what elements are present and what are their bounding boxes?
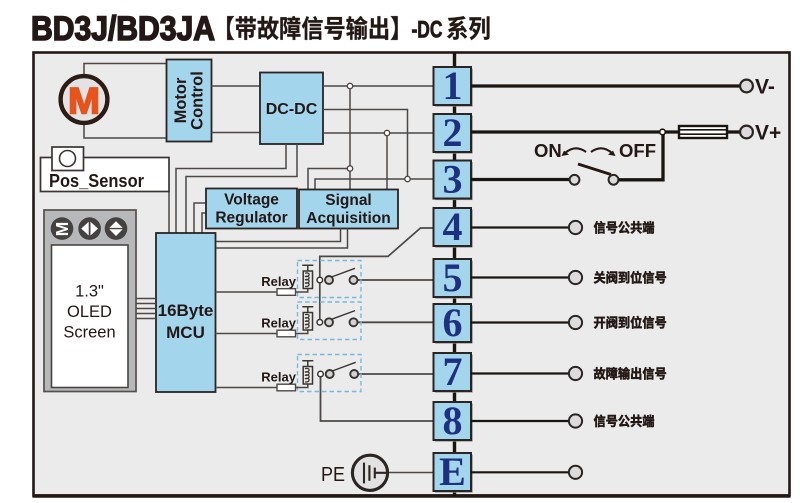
svg-text:5: 5 <box>443 255 463 300</box>
svg-text:BD3J/BD3JA: BD3J/BD3JA <box>31 10 215 48</box>
svg-text:Acquisition: Acquisition <box>306 210 390 227</box>
svg-text:ON: ON <box>534 140 562 161</box>
svg-text:E: E <box>439 449 466 494</box>
svg-text:-DC: -DC <box>412 16 443 43</box>
svg-text:1.3": 1.3" <box>75 283 104 301</box>
svg-text:V-: V- <box>755 76 775 99</box>
svg-text:16Byte: 16Byte <box>158 301 214 320</box>
svg-text:Regulator: Regulator <box>215 210 287 227</box>
svg-text:4: 4 <box>443 204 463 249</box>
svg-text:Signal: Signal <box>325 192 372 209</box>
svg-text:2: 2 <box>443 110 463 155</box>
svg-text:Voltage: Voltage <box>224 192 279 209</box>
svg-text:OFF: OFF <box>619 140 656 161</box>
svg-text:M: M <box>52 222 72 237</box>
svg-text:MCU: MCU <box>166 323 205 342</box>
svg-text:OLED: OLED <box>67 303 112 321</box>
svg-text:Motor: Motor <box>172 77 190 123</box>
svg-text:Screen: Screen <box>63 324 115 342</box>
svg-text:8: 8 <box>443 398 463 443</box>
svg-text:Control: Control <box>189 71 207 130</box>
svg-text:Pos_Sensor: Pos_Sensor <box>49 171 144 191</box>
svg-text:3: 3 <box>443 157 463 202</box>
svg-text:Relay: Relay <box>261 274 296 289</box>
svg-text:DC-DC: DC-DC <box>266 101 318 118</box>
svg-text:1: 1 <box>443 63 463 108</box>
svg-text:V+: V+ <box>755 122 781 145</box>
svg-text:6: 6 <box>443 300 463 345</box>
svg-text:M: M <box>68 81 100 122</box>
svg-text:Relay: Relay <box>261 370 296 385</box>
svg-text:7: 7 <box>443 349 463 394</box>
svg-text:PE: PE <box>321 464 345 486</box>
svg-text:Relay: Relay <box>261 316 296 331</box>
